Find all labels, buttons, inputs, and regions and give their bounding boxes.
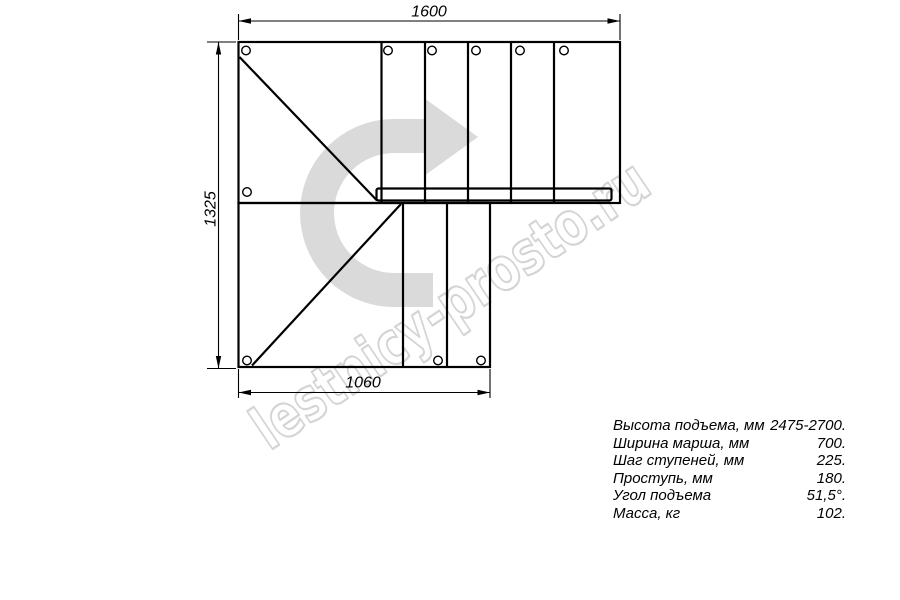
spec-row-mass: Масса, кг 102.: [613, 505, 846, 523]
stair-drawing-page: lestnicy-prosto.ru: [0, 0, 900, 600]
watermark-text: lestnicy-prosto.ru: [238, 145, 662, 463]
spec-label: Проступь, мм: [613, 470, 713, 488]
dimension-top: 1600: [239, 4, 621, 41]
spec-label: Ширина марша, мм: [613, 435, 749, 453]
spec-row-tread: Проступь, мм 180.: [613, 470, 846, 488]
dimension-left-value: 1325: [203, 191, 220, 227]
spec-value: 180.: [817, 470, 846, 488]
spec-row-height: Высота подъема, мм 2475-2700.: [613, 417, 846, 435]
spec-value: 2475-2700.: [770, 417, 846, 435]
spec-label: Шаг ступеней, мм: [613, 452, 744, 470]
spec-label: Угол подъема: [613, 487, 711, 505]
direction-arrow-head: [424, 98, 478, 176]
dimension-left: 1325: [203, 42, 237, 369]
spec-row-angle: Угол подъема 51,5°.: [613, 487, 846, 505]
spec-table: Высота подъема, мм 2475-2700. Ширина мар…: [613, 417, 846, 523]
spec-value: 225.: [817, 452, 846, 470]
direction-arrow-shaft: [317, 136, 433, 290]
spec-value: 102.: [817, 505, 846, 523]
spec-value: 700.: [817, 435, 846, 453]
spec-row-flight-width: Ширина марша, мм 700.: [613, 435, 846, 453]
spec-label: Масса, кг: [613, 505, 680, 523]
spec-label: Высота подъема, мм: [613, 417, 765, 435]
spec-value: 51,5°.: [807, 487, 846, 505]
dimension-top-value: 1600: [411, 4, 447, 21]
spec-row-step-pitch: Шаг ступеней, мм 225.: [613, 452, 846, 470]
dimension-bottom-value: 1060: [345, 375, 381, 392]
